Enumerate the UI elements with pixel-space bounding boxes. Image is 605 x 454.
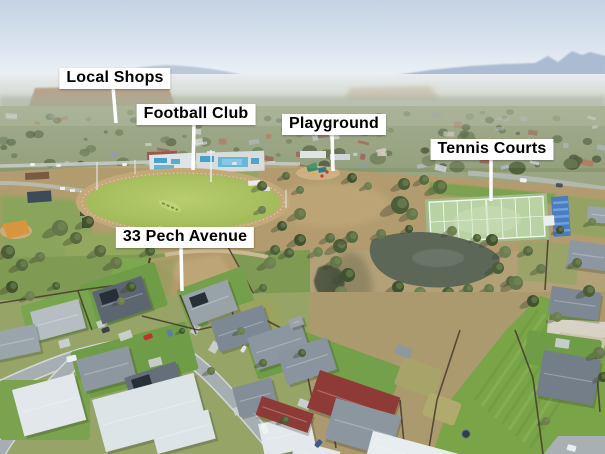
annotation-property: 33 Pech Avenue	[116, 227, 254, 248]
trampoline	[462, 430, 470, 438]
annotation-playground-label: Playground	[289, 115, 379, 132]
annotation-football-club: Football Club	[137, 104, 256, 125]
pointer-playground	[332, 133, 333, 171]
annotation-local-shops: Local Shops	[59, 68, 170, 89]
aerial-photo: Local Shops Football Club Playground Ten…	[0, 0, 605, 454]
annotation-playground: Playground	[282, 114, 386, 135]
annotation-tennis-courts-label: Tennis Courts	[438, 140, 547, 157]
pointer-football-club	[193, 124, 194, 170]
annotation-local-shops-label: Local Shops	[66, 69, 163, 86]
annotation-property-label: 33 Pech Avenue	[123, 228, 247, 245]
blue-shed	[27, 190, 52, 203]
annotation-tennis-courts: Tennis Courts	[431, 139, 554, 160]
white-canopy	[543, 215, 555, 226]
annotation-football-club-label: Football Club	[144, 105, 249, 122]
pointer-property	[181, 248, 182, 291]
